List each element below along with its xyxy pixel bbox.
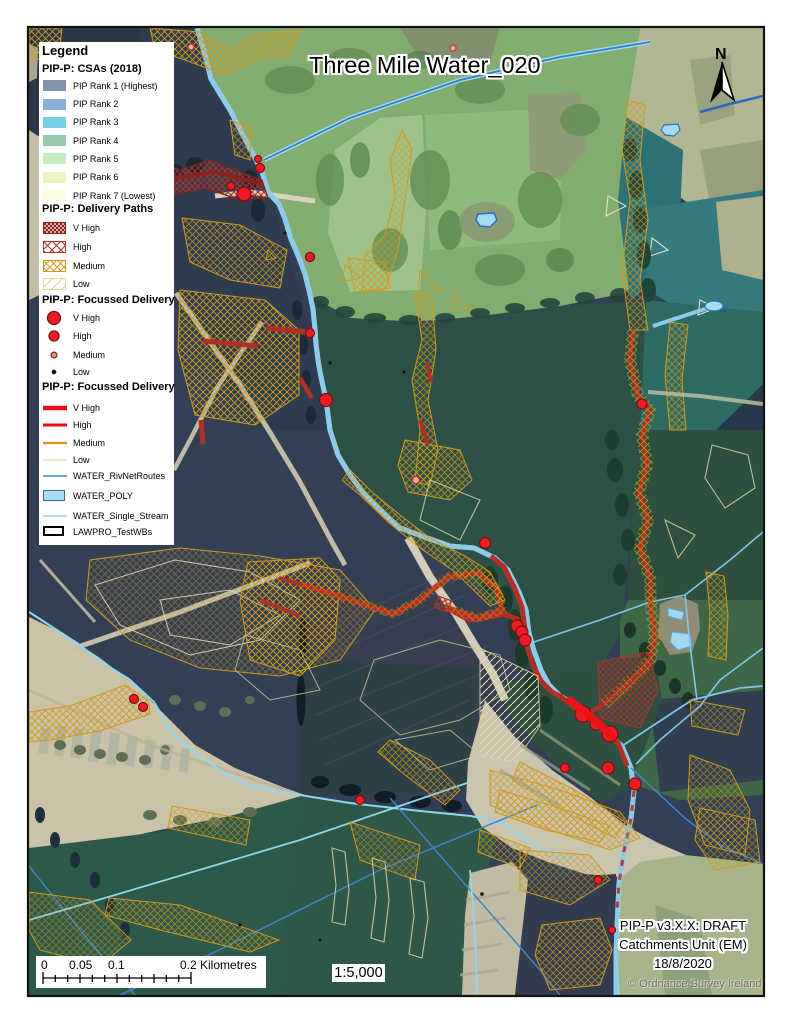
svg-text:N: N xyxy=(715,46,727,63)
